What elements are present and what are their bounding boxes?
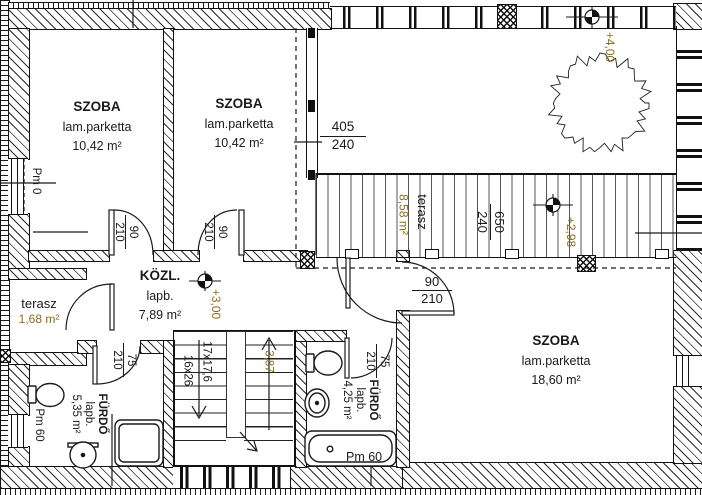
bathtub-drain-icon <box>327 446 333 452</box>
tree-icon <box>549 53 652 152</box>
dim-height: 210 <box>363 344 376 378</box>
room-floor: lapb. <box>100 287 220 306</box>
dim-width: 90 <box>125 215 139 249</box>
room-name: SZOBA <box>180 94 298 115</box>
dim-width: 90 <box>412 274 452 291</box>
room-area: 10,42 m² <box>180 134 298 153</box>
dim-height: 240 <box>320 137 366 154</box>
stair-total-rise: 3,87 <box>262 345 275 379</box>
door-leaf-bath1 <box>93 346 97 384</box>
stair-spec-2: 16x26 <box>181 349 194 393</box>
room-name: SZOBA <box>494 331 618 352</box>
room-area: 1,68 m² <box>8 312 70 326</box>
dim-width: 405 <box>320 119 366 137</box>
window-room2-dim: 405 240 <box>320 119 366 154</box>
floor-plan: SZOBA lam.parketta 10,42 m² SZOBA lam.pa… <box>0 0 702 495</box>
shower-tray-inner-icon <box>119 424 159 462</box>
hall-label: KÖZL. lapb. 7,89 m² <box>100 266 220 326</box>
toilet2-tank-icon <box>306 354 314 372</box>
room-floor: lam.parketta <box>494 352 618 371</box>
bath2-label: FÜRDŐ lapb. 4,25 m² <box>335 371 379 429</box>
door-bath1-dim: 75 210 <box>107 343 137 377</box>
door-room1-dim: 90 210 <box>109 215 139 249</box>
dim-height: 210 <box>112 215 125 249</box>
parapet-left-window: Pm 0 <box>28 161 42 201</box>
dim-width: 75 <box>376 344 390 378</box>
stair-spec-1: 17x17,6 <box>200 336 213 388</box>
room-floor: lam.parketta <box>38 118 156 137</box>
room-floor: lapb. <box>353 371 366 429</box>
level-terrace: +2,98 <box>564 212 578 252</box>
room-area: 7,89 m² <box>100 306 220 325</box>
room-name: FÜRDŐ <box>95 385 108 443</box>
door-room2-dim: 90 210 <box>198 215 228 249</box>
toilet-tank-icon <box>28 386 36 403</box>
dim-height: 210 <box>110 343 123 377</box>
room-area: 4,25 m² <box>339 371 352 429</box>
room-area: 5,35 m² <box>68 385 81 443</box>
door-leaf-room3 <box>402 311 454 315</box>
room2-label: SZOBA lam.parketta 10,42 m² <box>180 94 298 154</box>
dim-height: 240 <box>474 204 490 240</box>
room-name: KÖZL. <box>100 266 220 287</box>
dim-width: 75 <box>123 343 137 377</box>
door-room3-dim: 90 210 <box>412 274 452 308</box>
room1-label: SZOBA lam.parketta 10,42 m² <box>38 97 156 157</box>
dim-height: 210 <box>201 215 214 249</box>
room-area: 10,42 m² <box>38 137 156 156</box>
dim-width: 90 <box>214 215 228 249</box>
stair-arrow-landing <box>240 432 257 451</box>
parapet-bath1-window: Pm 60 <box>31 403 45 447</box>
terrace-large-name: terasz <box>414 187 430 237</box>
window-terrace-dim: 650 240 <box>473 204 507 240</box>
bath1-label: FÜRDŐ lapb. 5,35 m² <box>64 385 108 443</box>
terrace-small-label: terasz 1,68 m² <box>8 296 70 327</box>
door-leaf-room2 <box>239 210 244 255</box>
terrace-large-area: 8,58 m² <box>396 188 411 242</box>
level-hall: +3,00 <box>209 284 223 324</box>
benchmark-upper-terrace <box>566 6 618 28</box>
dim-width: 650 <box>490 204 507 240</box>
door-leaf-terrace <box>346 258 350 308</box>
dim-height: 210 <box>412 291 452 307</box>
room-name: SZOBA <box>38 97 156 118</box>
room-name: terasz <box>8 296 70 312</box>
room-name: FÜRDŐ <box>366 371 379 429</box>
level-upper-terrace: +4,00 <box>603 27 617 67</box>
washbasin2-drain-icon <box>316 402 319 405</box>
parapet-tub-window: Pm 60 <box>346 448 396 467</box>
washbasin-drain-icon <box>81 453 84 456</box>
room-floor: lapb. <box>82 385 95 443</box>
room-area: 18,60 m² <box>494 371 618 390</box>
room-floor: lam.parketta <box>180 115 298 134</box>
door-bath2-dim: 75 210 <box>360 344 390 378</box>
room3-label: SZOBA lam.parketta 18,60 m² <box>494 331 618 391</box>
